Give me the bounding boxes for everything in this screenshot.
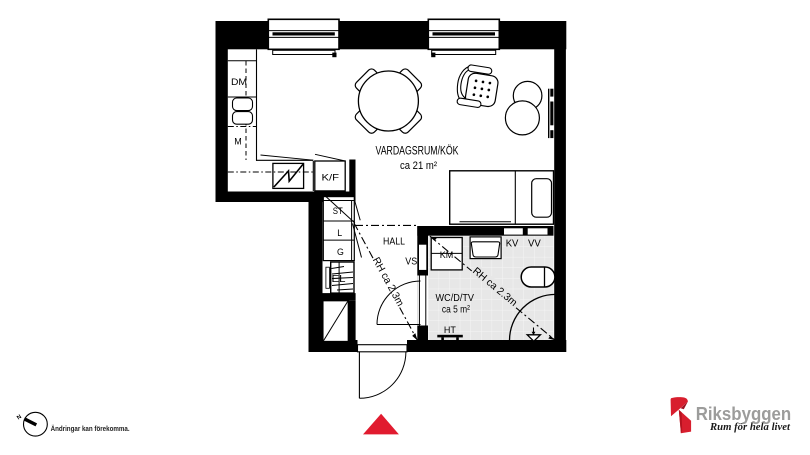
svg-text:VARDAGSRUM/KÖK: VARDAGSRUM/KÖK [376, 146, 459, 158]
svg-text:KM: KM [440, 250, 454, 260]
svg-text:L: L [337, 228, 342, 238]
svg-text:WC/D/TV: WC/D/TV [436, 292, 475, 304]
svg-text:Rum för hela livet: Rum för hela livet [709, 422, 791, 433]
svg-text:ca 21 m²: ca 21 m² [400, 160, 437, 172]
svg-text:ca 5 m²: ca 5 m² [442, 304, 470, 316]
svg-text:K/F: K/F [322, 173, 340, 184]
svg-text:Riksbyggen: Riksbyggen [696, 403, 792, 424]
svg-text:HT: HT [444, 325, 456, 335]
svg-text:DM: DM [231, 77, 247, 88]
svg-text:VV: VV [528, 239, 541, 250]
svg-text:G: G [337, 247, 344, 257]
svg-text:KV: KV [506, 239, 519, 250]
svg-text:VS: VS [405, 257, 417, 268]
svg-text:EL: EL [332, 274, 346, 285]
svg-text:HALL: HALL [383, 237, 405, 248]
svg-text:Ändringar kan förekomma.: Ändringar kan förekomma. [51, 425, 130, 433]
svg-text:M: M [234, 137, 242, 148]
